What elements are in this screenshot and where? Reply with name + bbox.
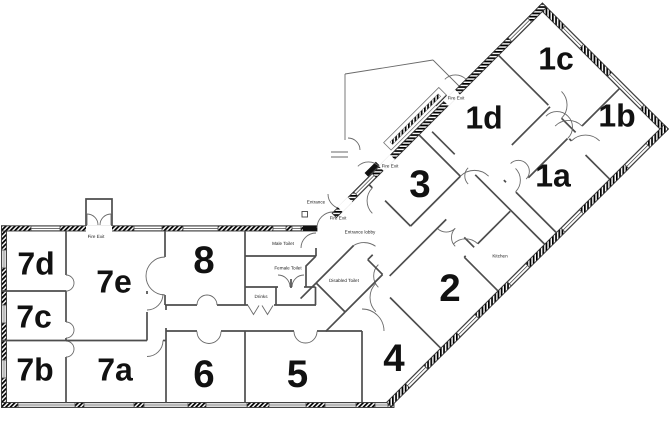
svg-text:7e: 7e: [96, 263, 132, 299]
svg-text:Entrance lobby: Entrance lobby: [345, 229, 376, 234]
svg-text:7a: 7a: [97, 351, 133, 387]
svg-text:Entrance: Entrance: [307, 199, 326, 204]
svg-text:1b: 1b: [598, 97, 635, 133]
svg-text:Disabled Toilet: Disabled Toilet: [329, 278, 360, 283]
svg-text:2: 2: [439, 267, 460, 310]
svg-text:4: 4: [383, 337, 405, 380]
svg-text:8: 8: [193, 239, 214, 282]
svg-text:5: 5: [287, 353, 308, 396]
svg-text:7b: 7b: [16, 351, 53, 387]
svg-text:Fire Exit: Fire Exit: [382, 163, 400, 168]
svg-text:1c: 1c: [538, 40, 574, 76]
svg-text:Male Toilet: Male Toilet: [272, 241, 295, 246]
svg-text:Fire Exit: Fire Exit: [448, 95, 466, 100]
svg-text:Fire Exit: Fire Exit: [330, 215, 348, 220]
svg-text:1d: 1d: [465, 99, 502, 135]
svg-text:Fire Exit: Fire Exit: [88, 234, 106, 239]
svg-text:7c: 7c: [16, 298, 52, 334]
svg-text:7d: 7d: [17, 245, 54, 281]
svg-text:Female Toilet: Female Toilet: [274, 265, 302, 270]
svg-text:Drinks: Drinks: [254, 294, 268, 299]
svg-text:3: 3: [409, 163, 430, 206]
svg-text:1a: 1a: [535, 157, 571, 193]
svg-text:Kitchen: Kitchen: [492, 253, 508, 258]
svg-text:6: 6: [193, 353, 214, 396]
